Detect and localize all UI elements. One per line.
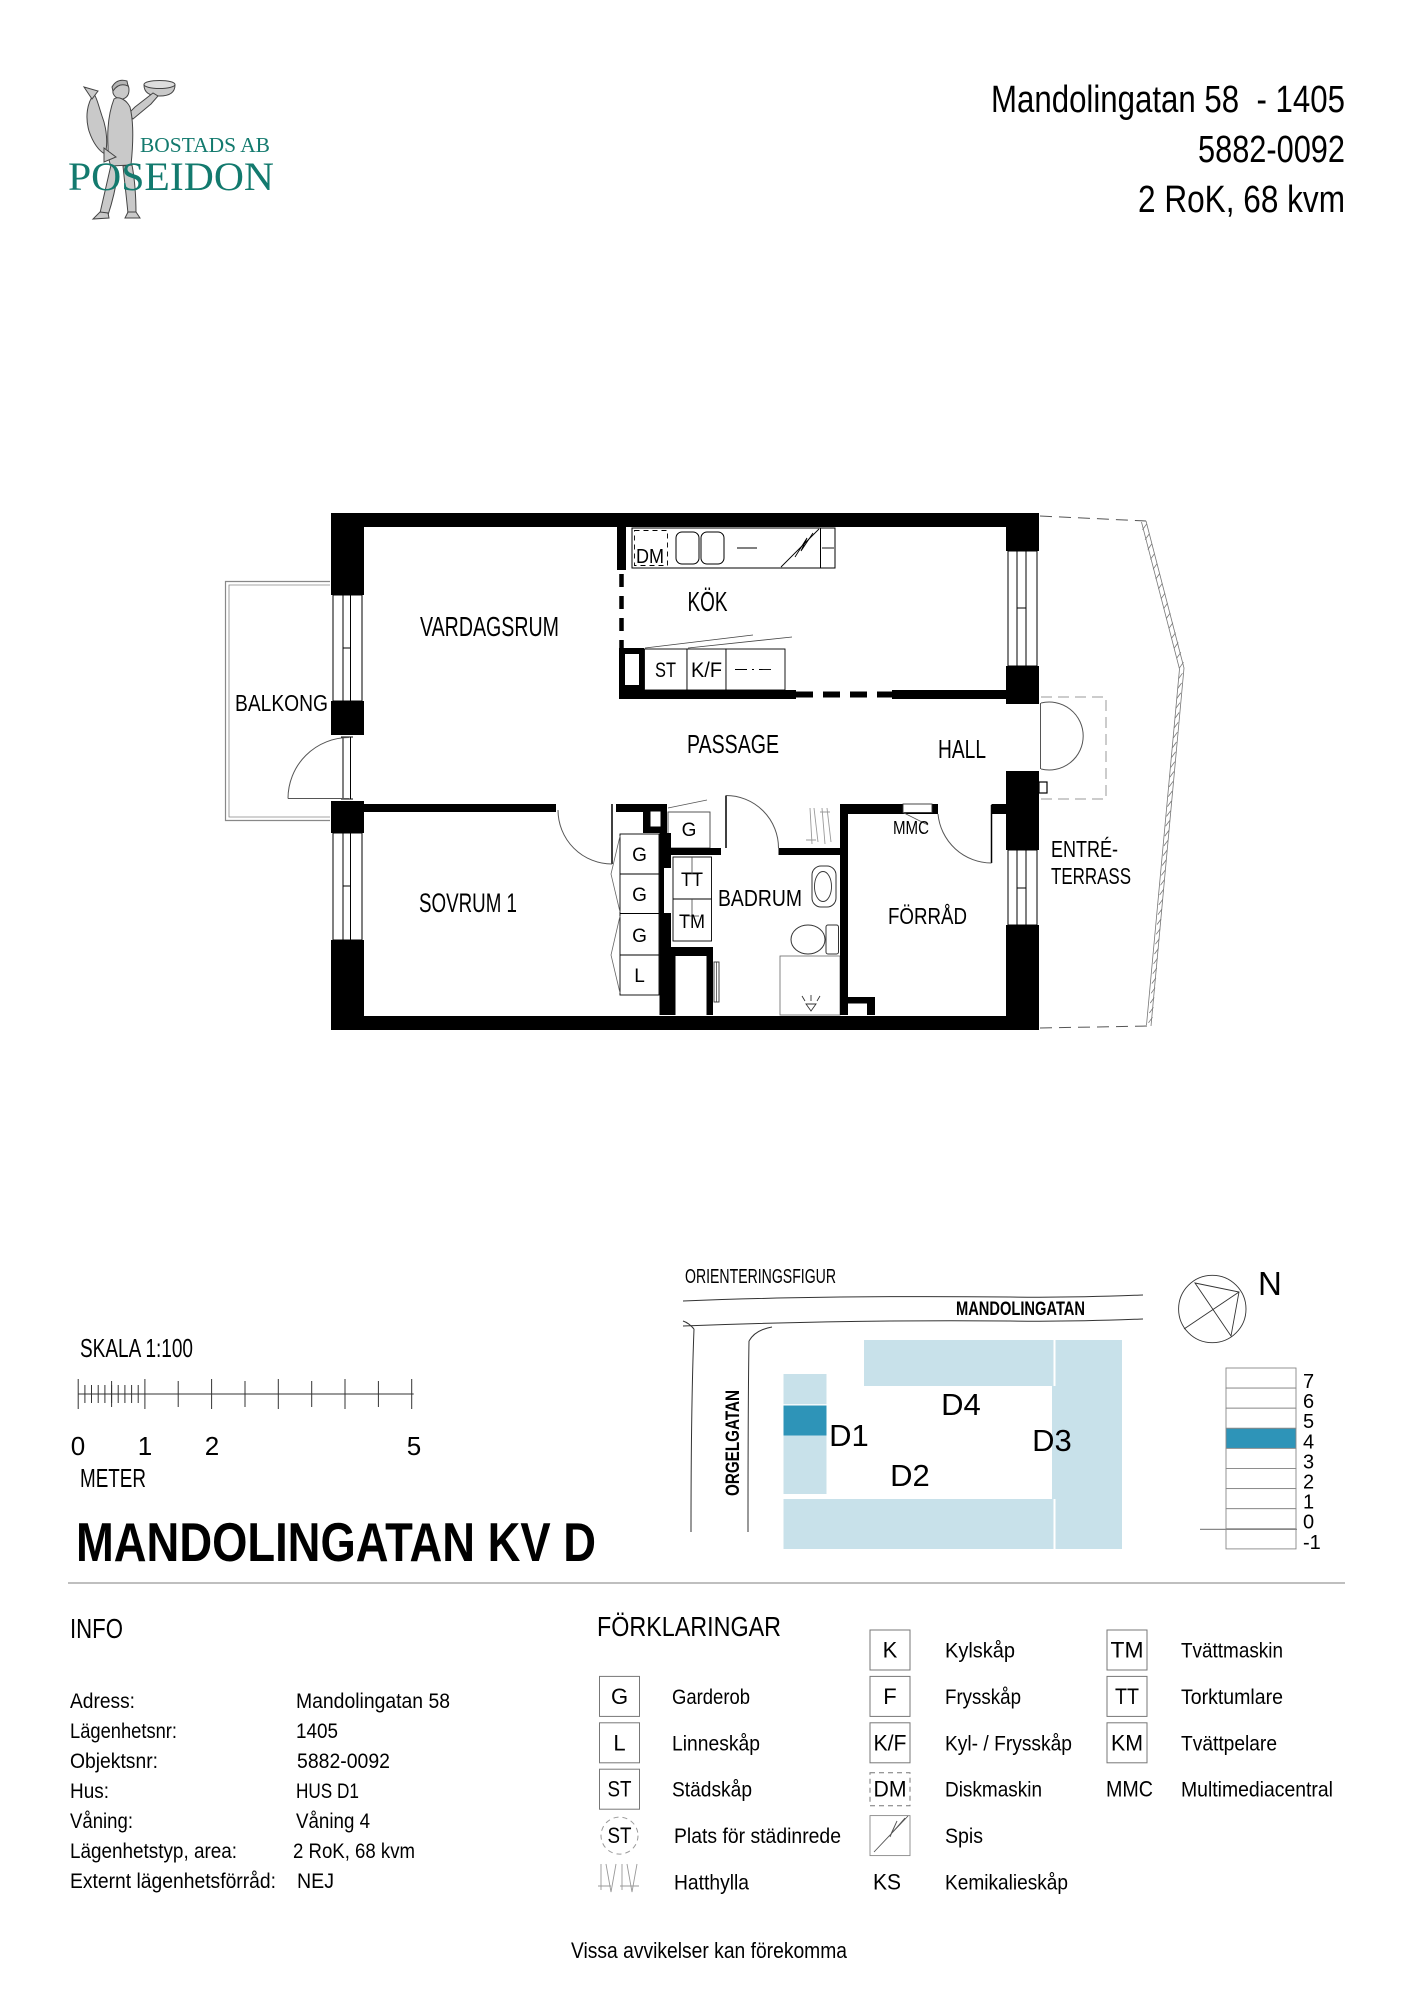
svg-text:7: 7: [1303, 1371, 1314, 1393]
svg-text:TM: TM: [1111, 1638, 1144, 1663]
svg-text:Lägenhetsnr:: Lägenhetsnr:: [70, 1720, 177, 1743]
svg-text:G: G: [632, 885, 647, 906]
svg-text:D4: D4: [941, 1387, 981, 1422]
svg-text:BADRUM: BADRUM: [718, 885, 802, 911]
svg-text:Våning 4: Våning 4: [296, 1810, 370, 1833]
svg-text:Externt lägenhetsförråd:: Externt lägenhetsförråd:: [70, 1870, 276, 1893]
svg-text:3: 3: [1303, 1451, 1314, 1473]
svg-text:2 RoK, 68 kvm: 2 RoK, 68 kvm: [293, 1840, 415, 1863]
svg-text:Frysskåp: Frysskåp: [945, 1686, 1021, 1709]
svg-text:Våning:: Våning:: [70, 1810, 133, 1833]
svg-text:MANDOLINGATAN KV D: MANDOLINGATAN KV D: [76, 1511, 596, 1573]
svg-text:FÖRRÅD: FÖRRÅD: [888, 902, 967, 929]
svg-text:D3: D3: [1032, 1423, 1072, 1458]
svg-text:Hatthylla: Hatthylla: [674, 1872, 749, 1895]
svg-text:Torktumlare: Torktumlare: [1181, 1686, 1283, 1709]
svg-text:VARDAGSRUM: VARDAGSRUM: [420, 611, 559, 642]
svg-text:POSEIDON: POSEIDON: [68, 154, 274, 199]
svg-text:KM: KM: [1111, 1730, 1143, 1755]
svg-text:Tvättmaskin: Tvättmaskin: [1181, 1640, 1283, 1663]
svg-text:HALL: HALL: [938, 734, 986, 764]
svg-text:TT: TT: [681, 870, 703, 891]
svg-text:TM: TM: [679, 912, 705, 933]
svg-text:Kemikalieskåp: Kemikalieskåp: [945, 1872, 1068, 1895]
svg-text:1: 1: [138, 1431, 152, 1461]
svg-text:Mandolingatan 58: Mandolingatan 58: [296, 1690, 450, 1713]
svg-text:Städskåp: Städskåp: [672, 1779, 752, 1802]
svg-text:-1: -1: [1303, 1532, 1321, 1554]
svg-text:Objektsnr:: Objektsnr:: [70, 1750, 158, 1773]
svg-text:G: G: [632, 926, 647, 947]
svg-text:ST: ST: [608, 1777, 632, 1802]
svg-text:HUS D1: HUS D1: [296, 1780, 359, 1803]
svg-text:L: L: [613, 1730, 625, 1755]
svg-text:Multimediacentral: Multimediacentral: [1181, 1779, 1333, 1802]
svg-text:5882-0092: 5882-0092: [297, 1750, 390, 1773]
svg-text:Kylskåp: Kylskåp: [945, 1640, 1015, 1663]
svg-text:FÖRKLARINGAR: FÖRKLARINGAR: [597, 1611, 781, 1642]
svg-text:INFO: INFO: [70, 1613, 123, 1644]
svg-text:MANDOLINGATAN: MANDOLINGATAN: [956, 1299, 1085, 1320]
svg-text:METER: METER: [80, 1463, 146, 1493]
svg-text:Mandolingatan 58 - 1405: Mandolingatan 58 - 1405: [991, 79, 1345, 121]
svg-text:TT: TT: [1115, 1684, 1139, 1709]
svg-text:SKALA 1:100: SKALA 1:100: [80, 1333, 193, 1363]
svg-text:Kyl- / Frysskåp: Kyl- / Frysskåp: [945, 1732, 1072, 1755]
svg-text:D1: D1: [829, 1418, 869, 1453]
svg-text:NEJ: NEJ: [297, 1870, 334, 1893]
svg-text:5: 5: [407, 1431, 421, 1461]
svg-text:0: 0: [1303, 1512, 1314, 1534]
svg-text:D2: D2: [890, 1458, 930, 1493]
svg-text:G: G: [682, 820, 697, 841]
svg-text:N: N: [1258, 1265, 1282, 1302]
svg-text:K/F: K/F: [874, 1730, 907, 1755]
svg-text:ST: ST: [608, 1823, 632, 1848]
svg-text:ORGELGATAN: ORGELGATAN: [723, 1390, 744, 1496]
svg-text:TERRASS: TERRASS: [1051, 863, 1131, 889]
svg-text:6: 6: [1303, 1391, 1314, 1413]
svg-text:Garderob: Garderob: [672, 1686, 750, 1709]
svg-text:ORIENTERINGSFIGUR: ORIENTERINGSFIGUR: [685, 1266, 836, 1288]
svg-text:1405: 1405: [296, 1720, 338, 1743]
svg-text:Plats för städinrede: Plats för städinrede: [674, 1825, 841, 1848]
svg-text:SOVRUM 1: SOVRUM 1: [419, 888, 517, 918]
svg-text:K: K: [883, 1638, 898, 1663]
svg-text:2 RoK, 68 kvm: 2 RoK, 68 kvm: [1138, 179, 1345, 221]
svg-text:ENTRÉ-: ENTRÉ-: [1051, 836, 1118, 862]
svg-text:DM: DM: [636, 546, 664, 568]
svg-text:ST: ST: [655, 659, 676, 682]
svg-text:2: 2: [1303, 1472, 1314, 1494]
svg-text:K/F: K/F: [691, 659, 722, 682]
svg-text:Tvättpelare: Tvättpelare: [1181, 1732, 1277, 1755]
svg-text:Linneskåp: Linneskåp: [672, 1732, 760, 1755]
svg-text:2: 2: [205, 1431, 219, 1461]
svg-text:BALKONG: BALKONG: [235, 690, 328, 716]
svg-text:Spis: Spis: [945, 1825, 983, 1848]
svg-text:Vissa avvikelser kan förekomma: Vissa avvikelser kan förekomma: [571, 1938, 848, 1963]
svg-text:4: 4: [1303, 1431, 1314, 1453]
svg-text:MMC: MMC: [1106, 1777, 1153, 1802]
svg-text:L: L: [634, 966, 645, 987]
svg-text:DM: DM: [874, 1777, 907, 1802]
svg-text:F: F: [883, 1684, 896, 1709]
svg-text:KS: KS: [873, 1870, 901, 1895]
svg-text:G: G: [632, 845, 647, 866]
svg-text:MMC: MMC: [893, 818, 929, 838]
svg-text:KÖK: KÖK: [688, 586, 728, 617]
svg-text:Diskmaskin: Diskmaskin: [945, 1779, 1042, 1802]
svg-text:Hus:: Hus:: [70, 1780, 109, 1803]
svg-text:Lägenhetstyp, area:: Lägenhetstyp, area:: [70, 1840, 237, 1863]
svg-text:5882-0092: 5882-0092: [1198, 129, 1345, 171]
svg-text:1: 1: [1303, 1492, 1314, 1514]
svg-text:PASSAGE: PASSAGE: [687, 729, 779, 759]
svg-text:0: 0: [71, 1431, 85, 1461]
svg-text:5: 5: [1303, 1411, 1314, 1433]
svg-text:G: G: [611, 1684, 628, 1709]
svg-text:Adress:: Adress:: [70, 1690, 135, 1713]
